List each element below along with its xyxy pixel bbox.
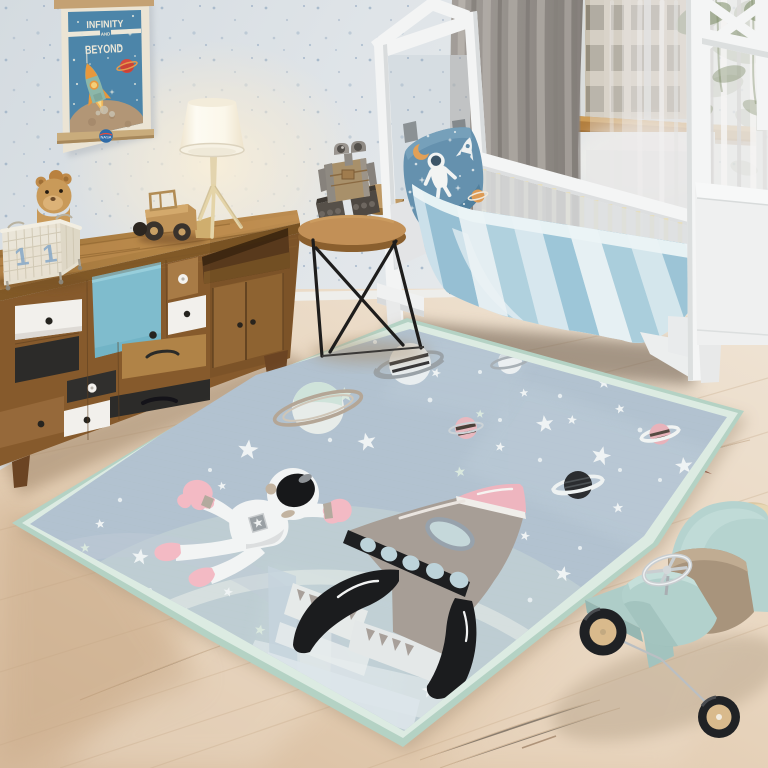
svg-text:AND: AND	[101, 31, 111, 36]
svg-text:NASA: NASA	[101, 135, 112, 140]
svg-text:BEYOND: BEYOND	[85, 41, 124, 57]
